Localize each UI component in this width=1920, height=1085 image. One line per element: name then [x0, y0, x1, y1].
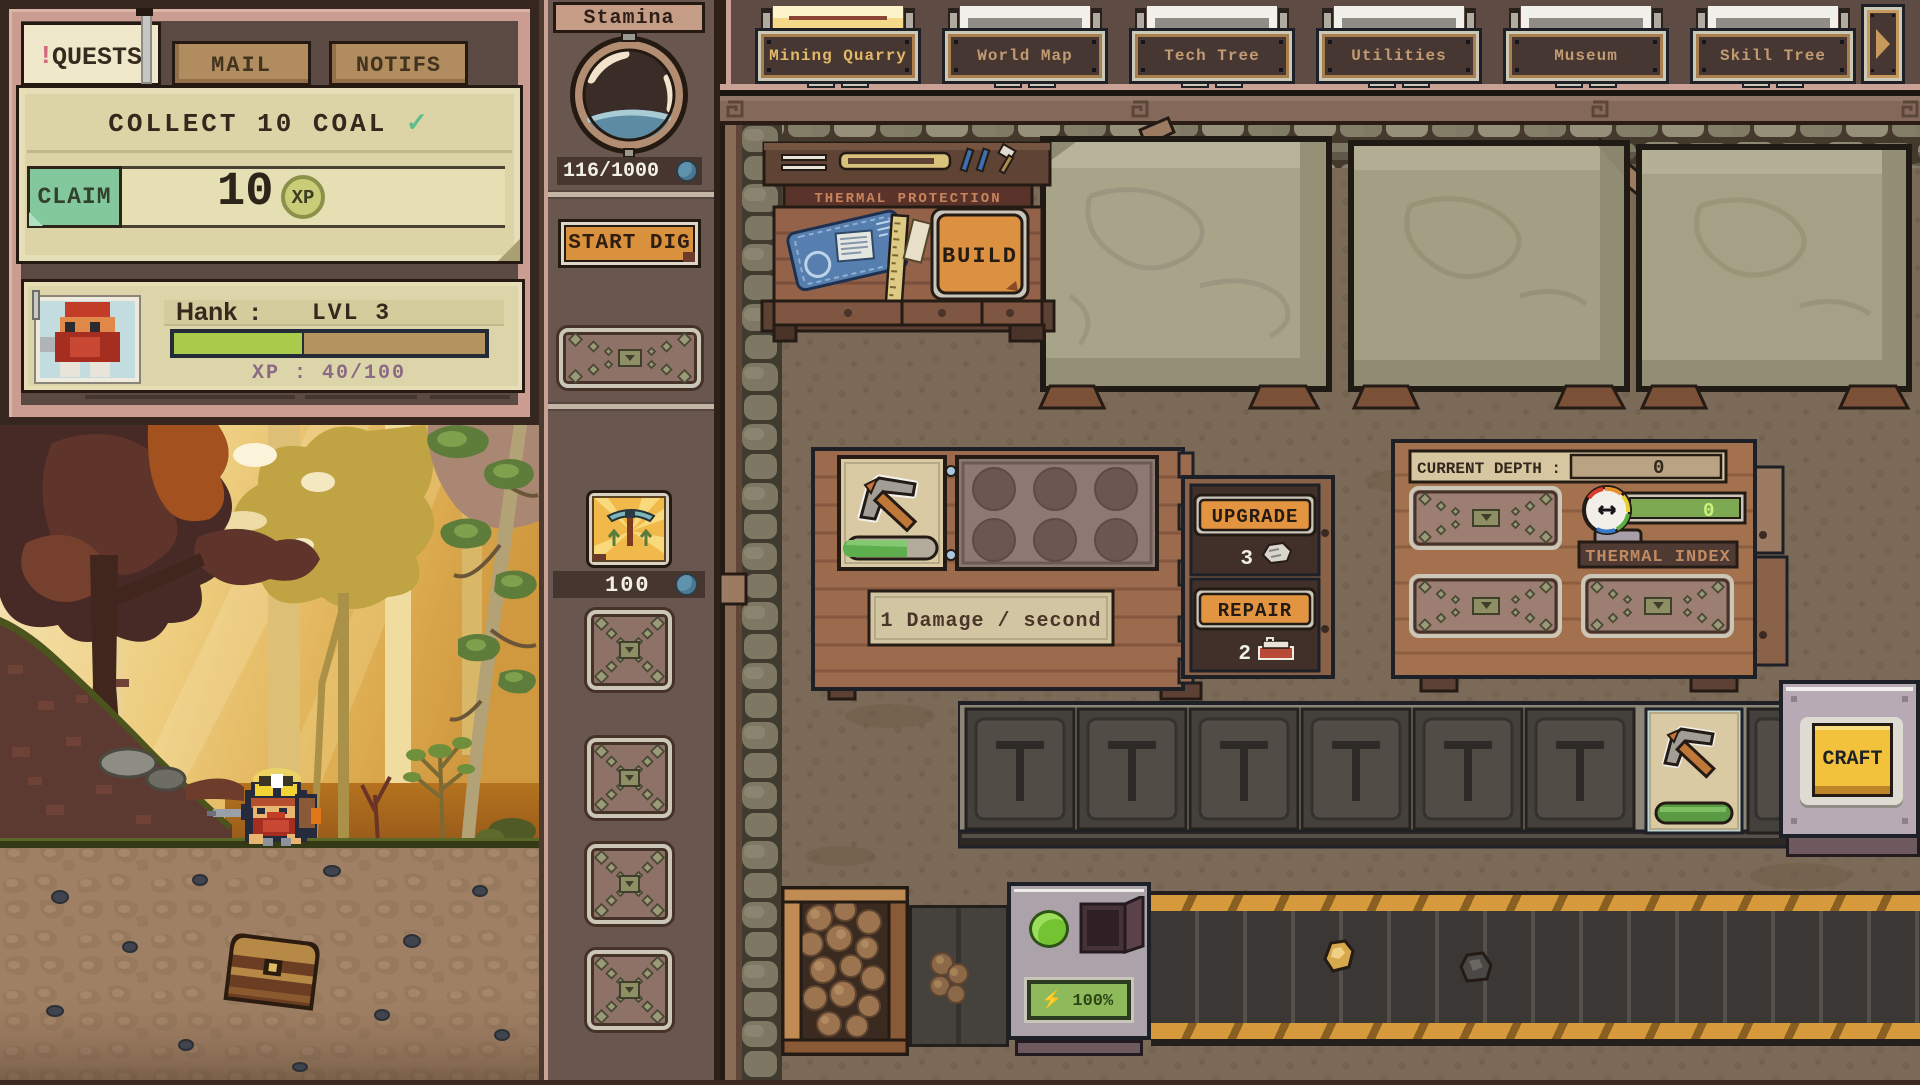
- svg-text:UPGRADE: UPGRADE: [1212, 506, 1299, 528]
- svg-text:0: 0: [1653, 457, 1664, 479]
- svg-text:2: 2: [1238, 643, 1251, 666]
- svg-text:0: 0: [1703, 500, 1714, 522]
- svg-text:REPAIR: REPAIR: [1218, 600, 1292, 622]
- svg-text:THERMAL PROTECTION: THERMAL PROTECTION: [814, 191, 1001, 207]
- svg-text:CURRENT DEPTH :: CURRENT DEPTH :: [1417, 460, 1561, 478]
- svg-text:BUILD: BUILD: [942, 244, 1018, 269]
- svg-text:THERMAL INDEX: THERMAL INDEX: [1585, 548, 1731, 567]
- svg-text:1 Damage / second: 1 Damage / second: [880, 610, 1101, 633]
- svg-text:3: 3: [1240, 548, 1253, 571]
